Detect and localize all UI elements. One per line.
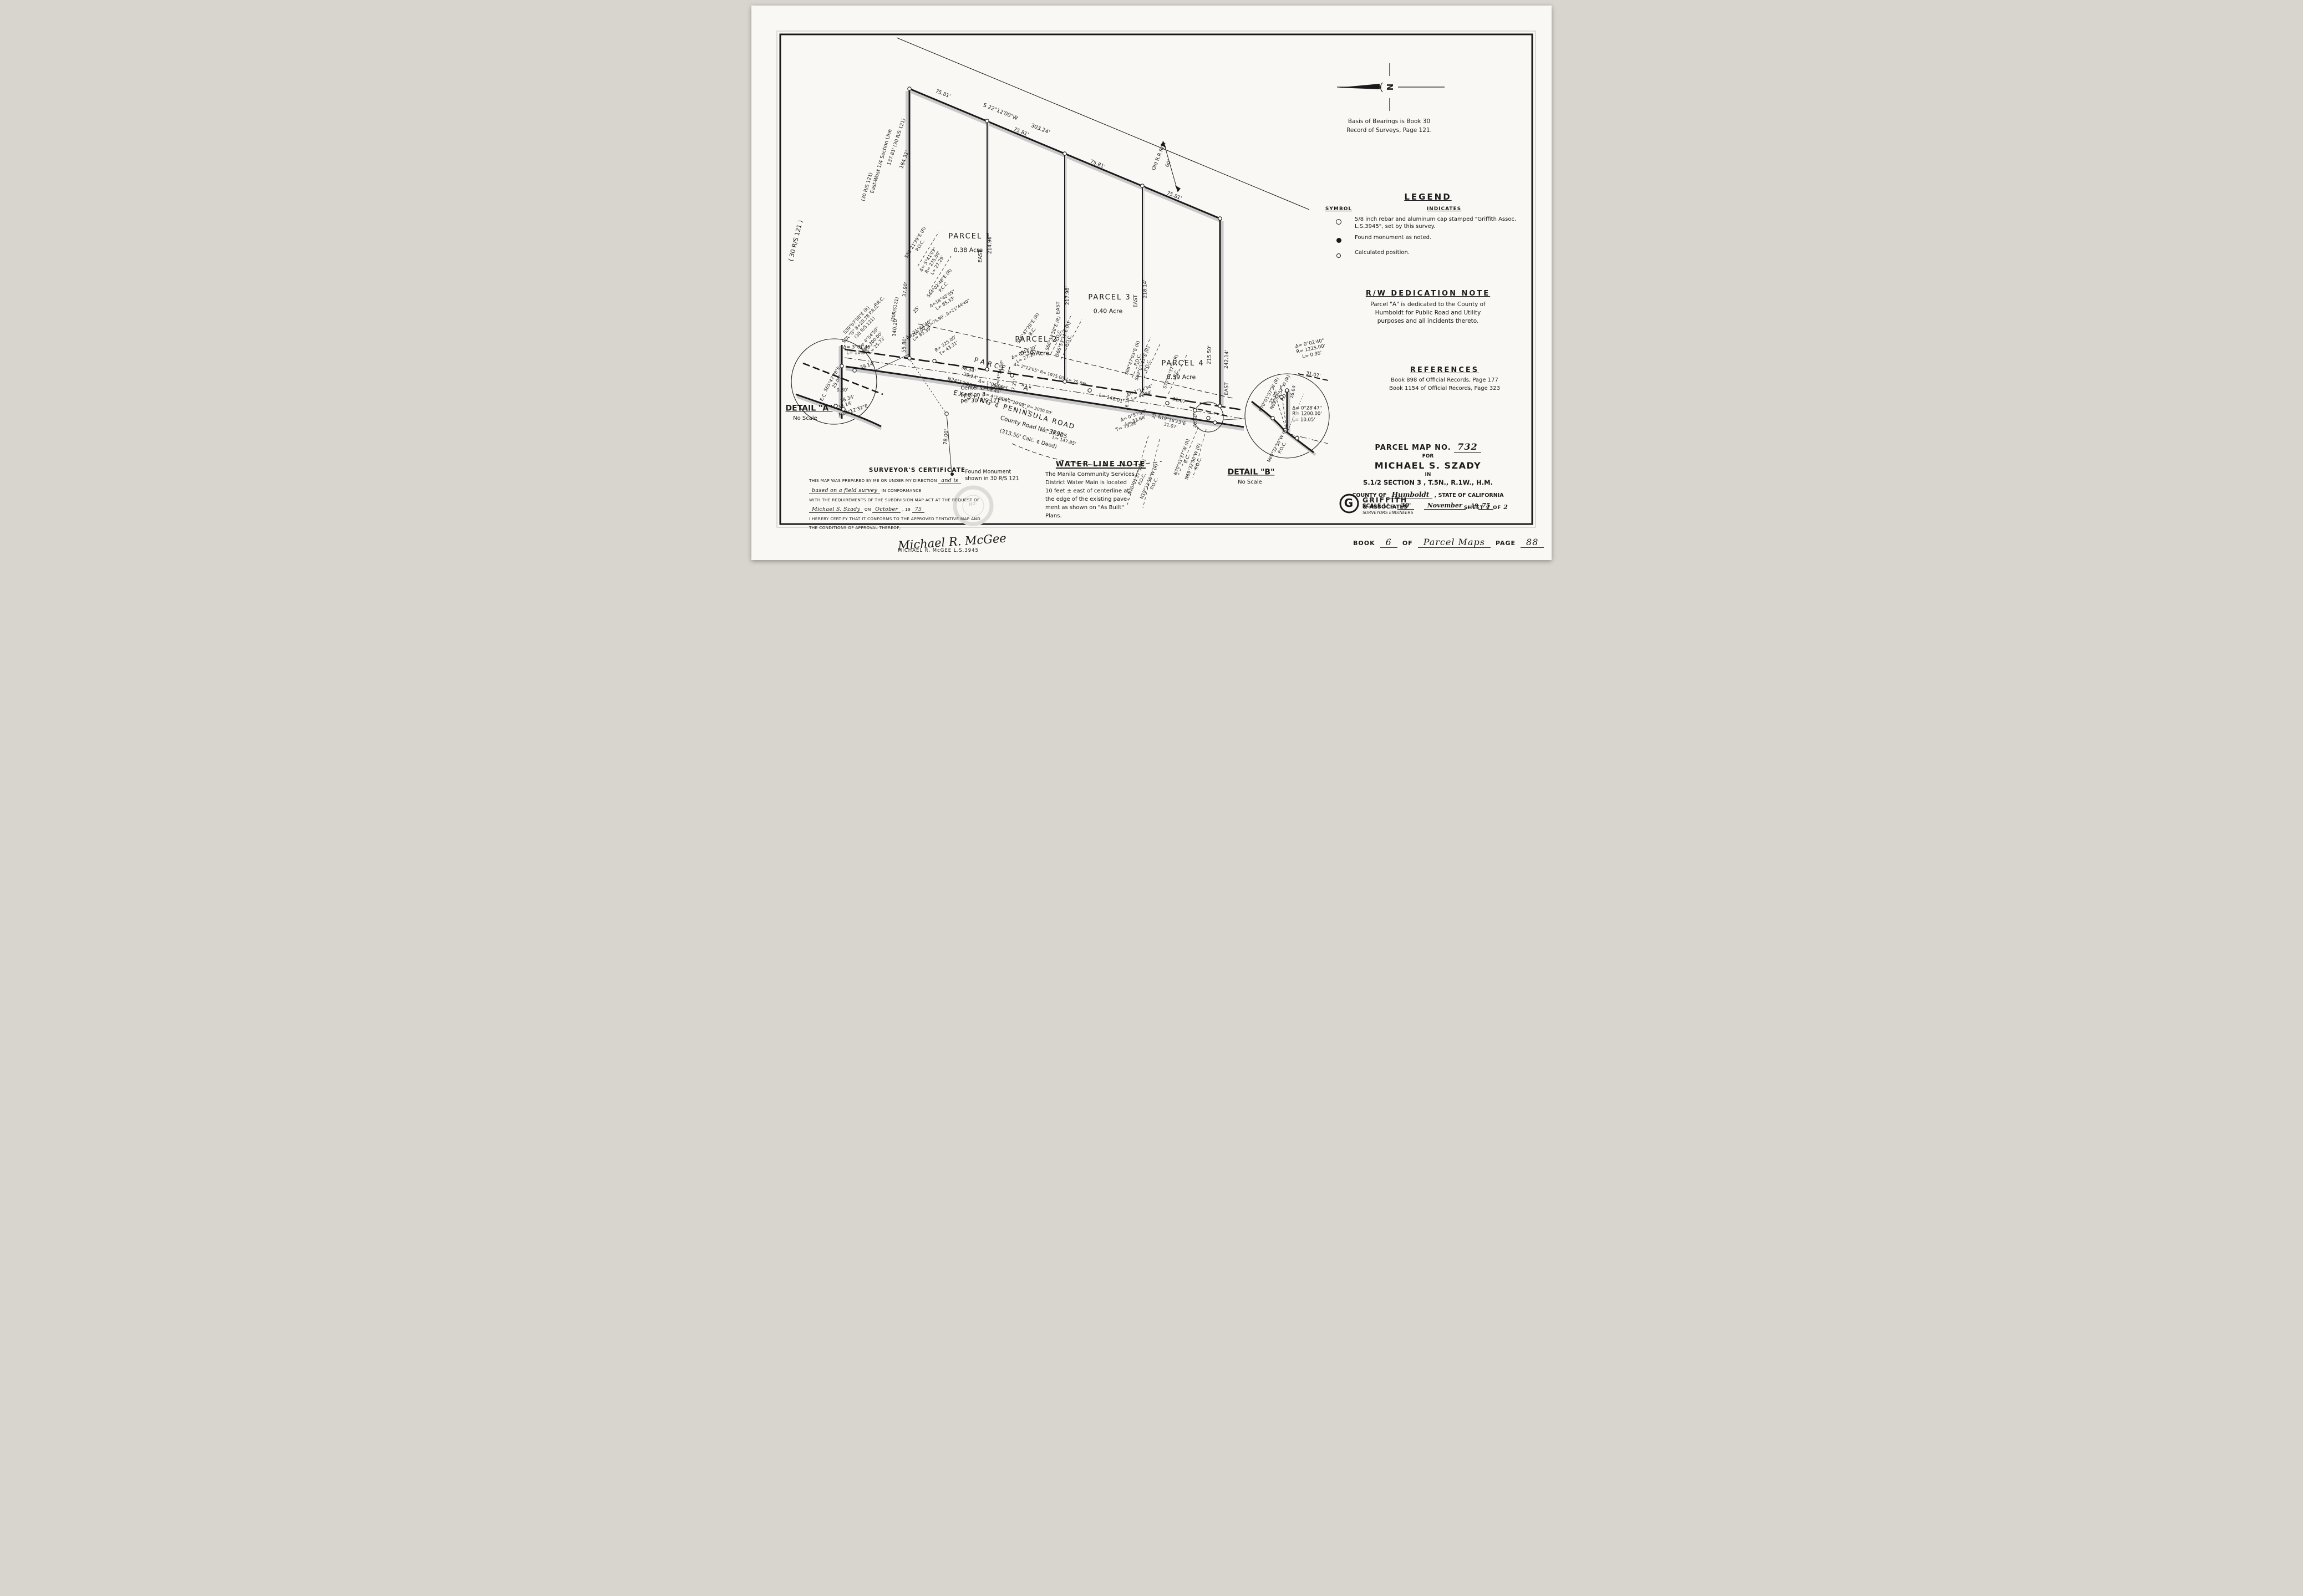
dist-7800: 78.00' bbox=[943, 429, 950, 445]
detail-a-080: 0.80' bbox=[836, 388, 848, 393]
basis-line-2: Record of Surveys, Page 121. bbox=[1306, 126, 1472, 135]
legend-item: Found monument as noted. bbox=[1323, 234, 1533, 245]
dist-5580: 55.80' bbox=[902, 337, 909, 353]
east-dist-24214: 242.14' bbox=[1224, 350, 1231, 369]
rw-note-line: Parcel "A" is dedicated to the County of bbox=[1317, 301, 1539, 309]
certificate-line: WITH THE REQUIREMENTS OF THE SUBDIVISION… bbox=[809, 497, 1025, 502]
firm-block: GRIFFITH & ASSOCIATES SURVEYORS ENGINEER… bbox=[1363, 496, 1413, 515]
state-label: , STATE OF CALIFORNIA bbox=[1435, 492, 1504, 499]
parcel3-acreage: 0.40 Acre bbox=[1094, 307, 1122, 314]
set-rebar-icon bbox=[1323, 216, 1355, 227]
parcel-map-sheet: N75.81'S 22°12'00"W303.24'75.81'75.81'75… bbox=[751, 6, 1552, 560]
references: REFERENCES Book 898 of Official Records,… bbox=[1339, 366, 1550, 393]
water-note-title: WATER LINE NOTE bbox=[1045, 460, 1156, 469]
center-corner-note: Center 1/4 Corner Section 3 per 30 R/S 1… bbox=[960, 385, 1008, 405]
certificate-text: IN CONFORMANCE bbox=[882, 488, 922, 493]
county-line: COUNTY OF Humboldt , STATE OF CALIFORNIA bbox=[1317, 491, 1539, 499]
map-number-line: PARCEL MAP NO. 732 bbox=[1317, 441, 1539, 452]
legend-item: Calculated position. bbox=[1323, 249, 1533, 260]
references-title: REFERENCES bbox=[1339, 366, 1550, 374]
legend-headers: SYMBOL INDICATES bbox=[1323, 206, 1533, 212]
detail-b-leader bbox=[1223, 419, 1245, 420]
div3-bearing: EAST bbox=[1133, 294, 1140, 307]
for-label: FOR bbox=[1317, 454, 1539, 459]
east-dist-21550: 215.50' bbox=[1207, 345, 1213, 364]
div1-bearing: EAST bbox=[978, 250, 984, 262]
in-label: IN bbox=[1317, 472, 1539, 477]
certificate-fill-and-is: and is bbox=[938, 477, 961, 484]
client-name: MICHAEL S. SZADY bbox=[1317, 460, 1539, 471]
legend-title: LEGEND bbox=[1323, 192, 1533, 202]
detail-a-d30145: Δ= 3°01'45" L= 10.57' bbox=[843, 345, 872, 357]
book-label: BOOK bbox=[1353, 540, 1375, 547]
water-note-line: The Manila Community Services bbox=[1045, 470, 1174, 479]
detail-b-title: DETAIL "B" bbox=[1228, 467, 1275, 477]
water-note-line: 10 feet ± east of centerline at bbox=[1045, 487, 1174, 495]
book-number: 6 bbox=[1380, 537, 1397, 548]
firm-name-2: & ASSOCIATES bbox=[1363, 504, 1413, 510]
rw-note-line: purposes and all incidents thereto. bbox=[1317, 317, 1539, 326]
firm-name-1: GRIFFITH bbox=[1363, 496, 1413, 504]
detail-a-scale: No Scale bbox=[793, 415, 817, 422]
date-month: November bbox=[1424, 502, 1466, 510]
map-number-value: 732 bbox=[1454, 441, 1481, 453]
certificate-line: THE CONDITIONS OF APPROVAL THEREOF; bbox=[809, 525, 1025, 530]
certificate-line: THIS MAP WAS PREPARED BY ME OR UNDER MY … bbox=[809, 477, 1025, 484]
series-name: Parcel Maps bbox=[1418, 537, 1491, 548]
certificate-fill-field-survey: based on a field survey bbox=[809, 487, 880, 494]
parcel1-name: PARCEL 1 bbox=[948, 232, 991, 241]
legend-item-text: Found monument as noted. bbox=[1355, 234, 1431, 241]
reference-line: Book 898 of Official Records, Page 177 bbox=[1339, 377, 1550, 385]
page-number: 88 bbox=[1521, 537, 1544, 548]
water-note-line: District Water Main is located bbox=[1045, 479, 1174, 487]
detail-a-title: DETAIL "A" bbox=[786, 404, 833, 413]
rr-rw-line bbox=[897, 38, 1309, 210]
certificate-title: SURVEYOR'S CERTIFICATE bbox=[809, 467, 1025, 474]
certificate-fill-client: Michael S. Szady bbox=[809, 506, 863, 513]
east-bearing: EAST bbox=[1224, 382, 1231, 395]
rw-dedication-note: R/W DEDICATION NOTE Parcel "A" is dedica… bbox=[1317, 289, 1539, 326]
div3-dist: 218.14' bbox=[1143, 279, 1149, 298]
certificate-text: ON bbox=[865, 507, 871, 512]
basis-of-bearings: Basis of Bearings is Book 30 Record of S… bbox=[1306, 118, 1472, 135]
sheet-number: 1 bbox=[1486, 504, 1491, 511]
water-line-note: WATER LINE NOTE The Manila Community Ser… bbox=[1045, 460, 1174, 520]
legend-item: 5/8 inch rebar and aluminum cap stamped … bbox=[1323, 216, 1533, 230]
found-monument-icon bbox=[1323, 234, 1355, 245]
certificate-line: I HEREBY CERTIFY THAT IT CONFORMS TO THE… bbox=[809, 516, 1025, 521]
water-note-line: Plans. bbox=[1045, 512, 1174, 520]
legend: LEGEND SYMBOL INDICATES 5/8 inch rebar a… bbox=[1323, 192, 1533, 264]
detail-b-d02847: Δ= 0°28'47" R= 1200.00' L= 10.05' bbox=[1292, 405, 1321, 423]
certificate-fill-month: October bbox=[872, 506, 901, 513]
legend-symbol-header: SYMBOL bbox=[1323, 206, 1355, 212]
basis-line-1: Basis of Bearings is Book 30 bbox=[1306, 118, 1472, 126]
certificate-line: based on a field survey IN CONFORMANCE bbox=[809, 487, 1025, 494]
certificate-line: Michael S. Szady ON October , 19 75 bbox=[809, 506, 1025, 512]
legend-indicates-header: INDICATES bbox=[1355, 206, 1533, 212]
book-page-line: BOOK 6 OF Parcel Maps PAGE 88 bbox=[1353, 537, 1544, 548]
surveyors-certificate: SURVEYOR'S CERTIFICATE THIS MAP WAS PREP… bbox=[809, 467, 1025, 553]
sheet-label: SHEET bbox=[1464, 505, 1484, 511]
parcel3-name: PARCEL 3 bbox=[1088, 293, 1131, 302]
rw-note-line: Humboldt for Public Road and Utility bbox=[1317, 309, 1539, 317]
calculated-position-icon bbox=[1323, 249, 1355, 260]
reference-line: Book 1154 of Official Records, Page 323 bbox=[1339, 385, 1550, 393]
water-note-line: ment as shown on "As Built" bbox=[1045, 504, 1174, 512]
water-note-line: the edge of the existing pave- bbox=[1045, 495, 1174, 504]
legend-item-text: Calculated position. bbox=[1355, 249, 1410, 256]
rw-note-title: R/W DEDICATION NOTE bbox=[1317, 289, 1539, 298]
of-label: OF bbox=[1402, 540, 1413, 547]
firm-name-3: SURVEYORS ENGINEERS bbox=[1363, 510, 1413, 515]
certificate-fill-year: 75 bbox=[912, 506, 925, 513]
certificate-text: THIS MAP WAS PREPARED BY ME OR UNDER MY … bbox=[809, 478, 937, 483]
sheet-line: SHEET 1 OF 2 bbox=[1464, 504, 1508, 511]
title-block: PARCEL MAP NO. 732 FOR MICHAEL S. SZADY … bbox=[1317, 441, 1539, 509]
legend-item-text: 5/8 inch rebar and aluminum cap stamped … bbox=[1355, 216, 1533, 230]
div1-dist: 214.96' bbox=[988, 235, 994, 254]
certificate-text: , 19 bbox=[902, 507, 911, 512]
detail-b-scale: No Scale bbox=[1238, 479, 1262, 486]
div2-bearing: EAST bbox=[1056, 301, 1062, 314]
sheet-total: 2 bbox=[1503, 504, 1508, 511]
div2-dist: 217.98' bbox=[1065, 286, 1071, 305]
page-label: PAGE bbox=[1496, 540, 1516, 547]
sheet-of-label: OF bbox=[1493, 505, 1501, 511]
north-arrow-letter: N bbox=[1385, 84, 1395, 91]
map-number-label: PARCEL MAP NO. bbox=[1375, 444, 1451, 452]
legal-location: S.1/2 SECTION 3 , T.5N., R.1W., H.M. bbox=[1317, 479, 1539, 486]
